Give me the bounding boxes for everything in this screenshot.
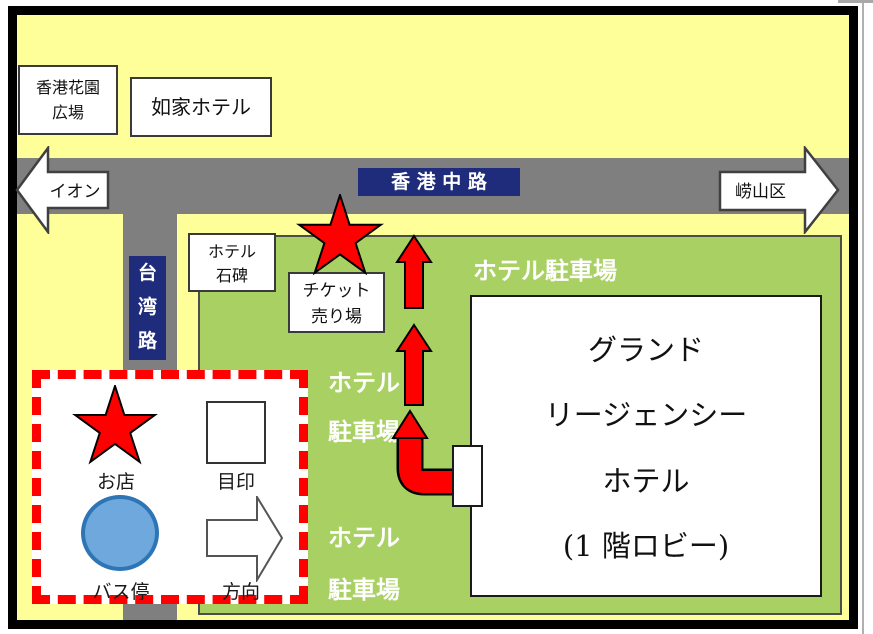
taiwan-char-2: 湾 bbox=[129, 290, 166, 324]
route-arrow-mid bbox=[397, 325, 431, 405]
parking-label-top: ホテル駐車場 bbox=[473, 251, 617, 286]
taiwan-char-3: 路 bbox=[129, 324, 166, 358]
grand-hotel-box: グランド リージェンシー ホテル (1 階ロビー) bbox=[470, 295, 822, 597]
ticket-office-line2: 売り場 bbox=[290, 304, 383, 330]
parking-bottom-line1: ホテル bbox=[328, 512, 412, 564]
hotel-stone-line1: ホテル bbox=[190, 240, 274, 264]
hotel-entrance-landmark bbox=[452, 445, 483, 507]
grand-hotel-line2: リージェンシー bbox=[472, 392, 820, 434]
route-arrowhead-curved bbox=[393, 411, 427, 438]
legend-label-bus-stop: バス停 bbox=[66, 577, 176, 604]
legend-direction-arrow-icon bbox=[206, 496, 284, 582]
route-arrow-top bbox=[397, 236, 431, 308]
road-sign-taiwan: 台 湾 路 bbox=[129, 256, 166, 360]
grand-hotel-line1: グランド bbox=[472, 327, 820, 369]
page-edge-line-vertical bbox=[862, 0, 864, 634]
legend-star-icon bbox=[72, 385, 158, 467]
legend-box: お店 目印 バス停 方向 bbox=[32, 370, 308, 604]
page-edge-line-top bbox=[838, 0, 873, 3]
garden-plaza-line1: 香港花園 bbox=[20, 75, 116, 100]
legend-label-shop: お店 bbox=[71, 467, 161, 494]
grand-hotel-line3: ホテル bbox=[472, 458, 820, 500]
garden-plaza-box: 香港花園 広場 bbox=[18, 65, 118, 135]
hotel-stone-box: ホテル 石碑 bbox=[188, 233, 276, 292]
right-arrow-label: 崂山区 bbox=[718, 177, 803, 202]
ticket-office-box: チケット 売り場 bbox=[288, 272, 385, 333]
grand-hotel-line4: (1 階ロビー) bbox=[472, 523, 820, 565]
left-arrow-label: イオン bbox=[44, 177, 106, 202]
ticket-office-line1: チケット bbox=[290, 278, 383, 304]
legend-label-landmark: 目印 bbox=[201, 467, 271, 494]
parking-bottom-line2: 駐車場 bbox=[328, 564, 412, 616]
access-map: { "signs": { "hongkong_road": "香 港 中 路",… bbox=[0, 0, 873, 634]
legend-square-icon bbox=[206, 401, 266, 464]
hotel-stone-line2: 石碑 bbox=[190, 264, 274, 288]
parking-label-bottom: ホテル 駐車場 bbox=[328, 512, 412, 616]
rujia-hotel-box: 如家ホテル bbox=[130, 77, 272, 137]
legend-label-direction: 方向 bbox=[201, 577, 281, 604]
shop-star-icon bbox=[296, 194, 384, 278]
taiwan-char-1: 台 bbox=[129, 256, 166, 290]
road-sign-hongkong: 香 港 中 路 bbox=[358, 168, 520, 196]
legend-bus-stop-icon bbox=[81, 495, 159, 571]
garden-plaza-line2: 広場 bbox=[20, 100, 116, 125]
